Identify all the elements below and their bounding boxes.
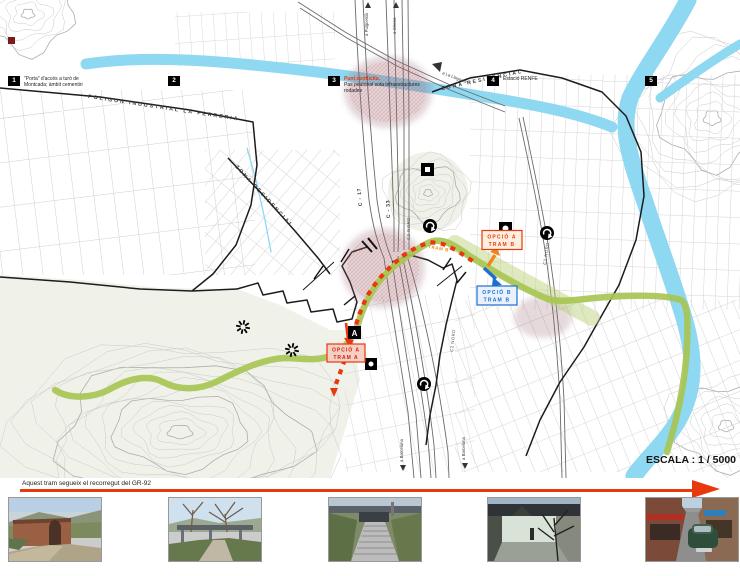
planning-map: A OPCIÓ A TRAM B OPCIÓ B TRAM B OPCIÓ A … <box>0 0 740 478</box>
photo-1-caption: "Porta" d'accés a turó de Montcada; àmbi… <box>24 76 136 88</box>
landmark-dot-icon <box>365 358 377 370</box>
photo-1-caption-line2: Montcada; àmbit cementiri <box>24 82 136 88</box>
opcio-a-tram-a-box: OPCIÓ A TRAM A <box>327 344 365 362</box>
opcio-b-tram-b-line2: TRAM B <box>484 298 511 304</box>
summit-landmark-icon <box>421 163 434 176</box>
photo-3-caption-line2: rodades <box>344 88 456 94</box>
opcio-a-tram-b-box: OPCIÓ A TRAM B <box>482 231 522 250</box>
marker-a-label: A <box>352 329 358 338</box>
opcio-b-tram-b-line1: OPCIÓ B <box>482 288 512 296</box>
label-road-c17: C - 17 <box>356 187 364 206</box>
opcio-b-tram-b-box: OPCIÓ B TRAM B <box>477 286 517 305</box>
photo-4 <box>487 497 581 562</box>
underpass-icon-3 <box>417 377 431 391</box>
opcio-a-tram-b-line2: TRAM B <box>489 242 516 248</box>
photo-2-image <box>169 498 261 561</box>
label-dest-bottom-left: a Barcelona <box>399 438 404 462</box>
scale-label: ESCALA : 1 / 5000 <box>646 454 736 466</box>
strip-note: Aquest tram segueix el recorregut del GR… <box>22 480 151 487</box>
photo-4-caption-line1: Estació RENFE <box>503 76 615 82</box>
photo-3-number: 3 <box>328 76 340 86</box>
legend-red-square <box>8 37 15 44</box>
photo-1-number: 1 <box>8 76 20 86</box>
gr92-arrow-line <box>20 489 694 492</box>
photo-5-number: 5 <box>645 76 657 86</box>
contours-topleft <box>0 0 76 59</box>
opcio-a-tram-b-line1: OPCIÓ A <box>487 233 516 241</box>
plan-sheet: A OPCIÓ A TRAM B OPCIÓ B TRAM B OPCIÓ A … <box>0 0 740 576</box>
underpass-icon-1 <box>423 219 437 233</box>
photo-4-number: 4 <box>487 76 499 86</box>
photo-5 <box>645 497 739 562</box>
opcio-a-tram-a-line2: TRAM A <box>333 355 358 361</box>
photo-3 <box>328 497 422 562</box>
photo-5-image <box>646 498 738 561</box>
gr92-arrowhead-icon <box>692 480 720 498</box>
label-zona-residencial-west: ZONA RESIDENCIAL <box>234 164 295 229</box>
map-area: A OPCIÓ A TRAM B OPCIÓ B TRAM B OPCIÓ A … <box>0 0 740 478</box>
label-dest-top-right: a Girona <box>392 17 397 34</box>
label-dest-top-left: a Puigcerdà <box>364 12 369 36</box>
dest-arrow-rail <box>432 62 442 72</box>
photo-4-caption: Estació RENFE <box>503 76 615 82</box>
label-dest-bottom-right: a Barcelona <box>461 436 466 460</box>
marker-a: A <box>348 326 361 339</box>
underpass-icon-2 <box>540 226 554 240</box>
photo-4-image <box>488 498 580 561</box>
photo-2 <box>168 497 262 562</box>
label-road-c33: C - 33 <box>385 200 392 219</box>
photo-2-number: 2 <box>168 76 180 86</box>
photo-1 <box>8 497 102 562</box>
dest-arrow-top-left <box>365 2 371 8</box>
photo-1-image <box>9 498 101 561</box>
hill-tint <box>0 275 360 478</box>
label-rail-c2-nord-3: C2 NORD <box>449 329 456 352</box>
label-rail-c2-nord-1: C2 NORD <box>406 217 411 240</box>
photo-3-caption: Punt conflictiu. Pas peatonal sota infra… <box>344 76 456 94</box>
photo-3-image <box>329 498 421 561</box>
opcio-a-tram-a-line1: OPCIÓ A <box>332 346 360 354</box>
river-branch <box>660 44 740 98</box>
